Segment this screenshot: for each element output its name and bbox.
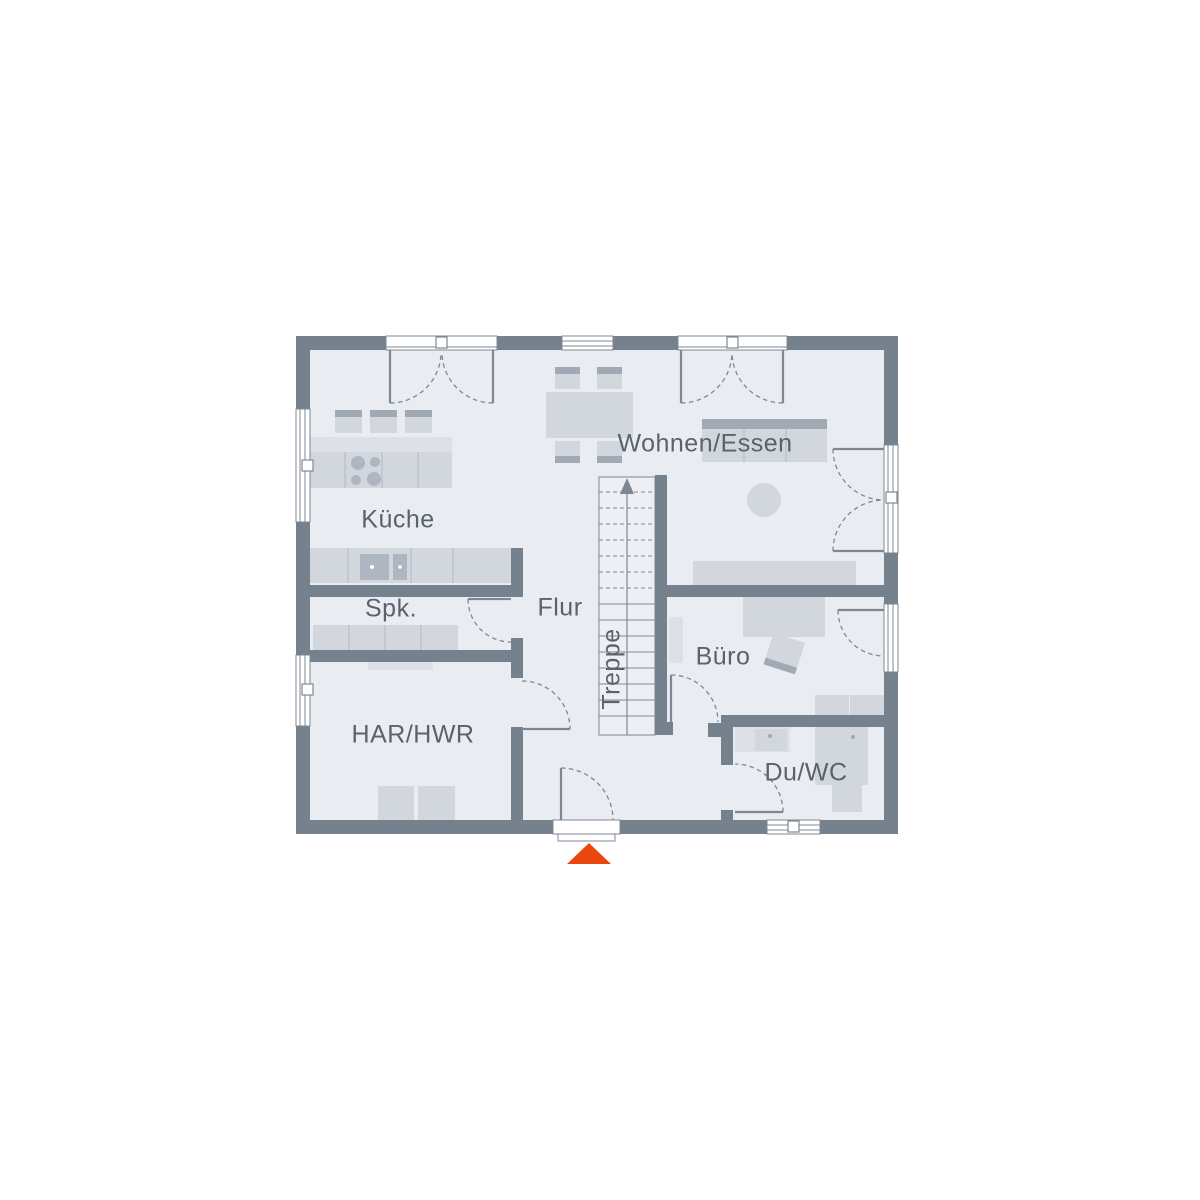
door-handle-icon: [727, 337, 738, 348]
wall-stairs-foot: [655, 722, 673, 735]
cooktop-burner: [351, 456, 365, 470]
dryer: [418, 786, 455, 820]
floor-plan-drawing: Küche Wohnen/Essen Spk. Flur Treppe Büro…: [0, 0, 1200, 1200]
washing-machine: [378, 786, 414, 820]
room-label-flur: Flur: [537, 594, 582, 622]
barstool-back: [335, 410, 362, 417]
dining-chair-back: [555, 367, 580, 374]
office-cabinet: [815, 695, 849, 715]
sofa-back: [702, 419, 827, 429]
room-label-du-wc: Du/WC: [764, 759, 847, 787]
pantry-furniture: [313, 625, 458, 650]
room-label-buero: Büro: [696, 643, 751, 671]
wall-counter-stub: [511, 548, 523, 597]
barstool-back: [370, 410, 397, 417]
sink-drain: [370, 565, 374, 569]
sink-drain: [398, 565, 402, 569]
entrance-arrow-icon: [567, 843, 611, 864]
kitchen-counter: [310, 452, 452, 488]
window-handle-icon: [302, 684, 313, 695]
floor-plan-page: Küche Wohnen/Essen Spk. Flur Treppe Büro…: [0, 0, 1200, 1200]
barstool-back: [405, 410, 432, 417]
wall-pantry-cap: [511, 638, 523, 678]
cooktop-burner: [367, 472, 381, 486]
room-label-kueche: Küche: [361, 506, 434, 534]
cooktop-burner: [370, 457, 380, 467]
room-label-spk: Spk.: [365, 595, 417, 623]
shower-drain: [851, 735, 855, 739]
window: [562, 336, 613, 350]
wall-utility-hall: [511, 727, 523, 820]
desk: [743, 597, 825, 637]
entrance-door-opening: [553, 820, 620, 834]
entrance-step: [558, 834, 615, 841]
wall-office-bath: [728, 715, 884, 727]
window-handle-icon: [788, 821, 799, 832]
office-cabinet: [850, 695, 884, 715]
sideboard: [693, 561, 856, 586]
dining-chair-back: [555, 456, 580, 463]
door-handle-icon: [886, 492, 897, 503]
washbasin: [755, 729, 787, 751]
exterior-wall-right: [884, 336, 898, 834]
sink-basin: [360, 554, 389, 580]
room-label-treppe: Treppe: [598, 628, 626, 709]
terrace-door-opening: [884, 604, 898, 672]
kitchen-counter-top: [310, 437, 452, 452]
wall-stairs-right: [655, 475, 667, 735]
wall-bath-left: [721, 715, 733, 765]
faucet: [768, 734, 772, 738]
toilet: [832, 785, 862, 812]
door-handle-icon: [436, 337, 447, 348]
coffee-table: [747, 483, 781, 517]
room-label-har-hwr: HAR/HWR: [352, 721, 475, 749]
dining-chair-back: [597, 367, 622, 374]
room-label-wohnen-essen: Wohnen/Essen: [617, 430, 792, 458]
wall-bath-stub: [708, 723, 721, 737]
cooktop-burner: [351, 475, 361, 485]
office-bookshelf: [669, 617, 683, 663]
wall-pantry-utility: [310, 650, 523, 662]
window-handle-icon: [302, 460, 313, 471]
wall-bath-left-lower: [721, 810, 733, 822]
wall-living-office: [667, 585, 884, 597]
